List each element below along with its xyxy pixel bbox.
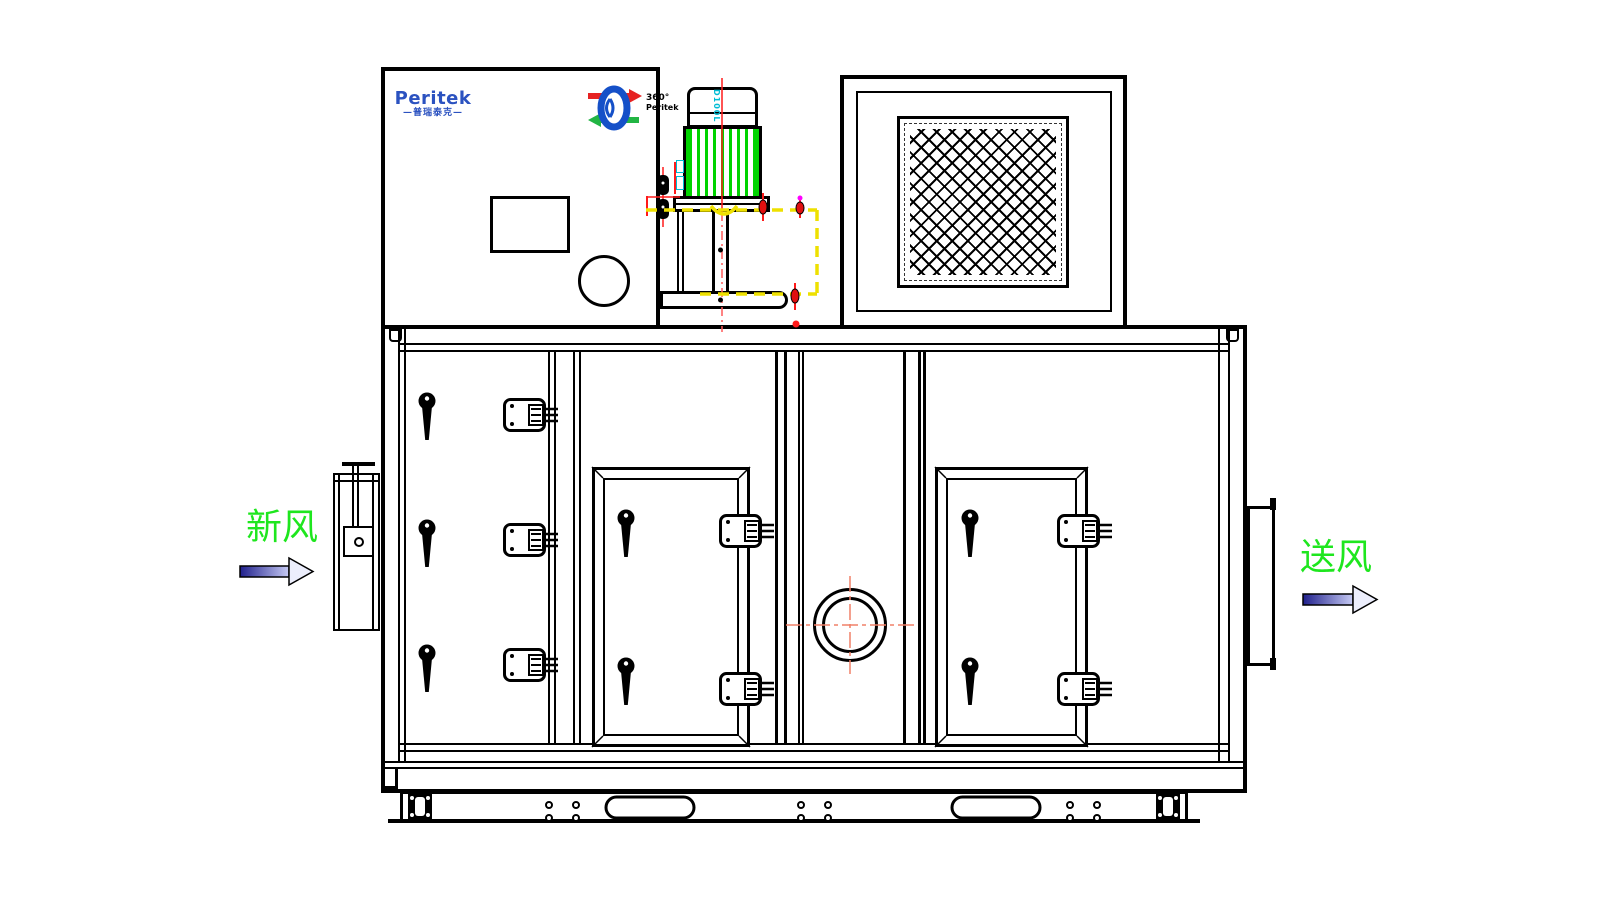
partition-post bbox=[798, 352, 804, 744]
motor-fins bbox=[683, 126, 762, 200]
rotor-badge-text: 360° Peritek bbox=[646, 93, 679, 113]
motor-cap-line bbox=[690, 112, 755, 114]
partition-post bbox=[903, 352, 906, 744]
fresh-air-arrow-icon bbox=[240, 558, 313, 585]
cabinet-floor-line bbox=[381, 761, 1247, 769]
display-window bbox=[490, 196, 570, 253]
top-left-notch bbox=[389, 329, 402, 342]
motor-stand-left-leg bbox=[677, 212, 684, 294]
ground-line bbox=[388, 819, 1200, 823]
middle-door-inner-frame bbox=[603, 478, 739, 736]
motor-frame-label: D100L bbox=[712, 89, 720, 127]
cabinet-right-inner-wall bbox=[1218, 329, 1230, 762]
partition-post bbox=[918, 352, 926, 744]
cabinet-bottom-inner-line bbox=[398, 743, 1230, 752]
bottom-left-notch bbox=[383, 769, 398, 789]
brand-logo-text: Peritek bbox=[390, 90, 476, 108]
damper-actuator-shaft bbox=[354, 537, 364, 547]
supply-air-label: 送风 bbox=[1300, 540, 1372, 576]
cabinet-left-inner-wall bbox=[398, 329, 406, 762]
partition-post bbox=[775, 352, 787, 744]
rotor-badge-line2: Peritek bbox=[646, 103, 679, 112]
base-rail bbox=[400, 791, 1188, 822]
inlet-damper-inner-line bbox=[338, 475, 340, 629]
motor-base-plate-line bbox=[676, 203, 767, 205]
partition-post bbox=[573, 352, 581, 744]
supply-air-arrow-icon bbox=[1303, 586, 1377, 613]
inspection-hole bbox=[578, 255, 630, 307]
motor-terminal-box bbox=[676, 176, 684, 190]
brand-logo-subtext: —普瑞泰克— bbox=[390, 109, 476, 118]
motor-support-channel bbox=[660, 291, 788, 309]
piping-annotation-yellow bbox=[646, 206, 817, 294]
brand-logo: Peritek —普瑞泰克— bbox=[390, 90, 476, 118]
right-door-inner-frame bbox=[946, 478, 1077, 736]
sight-glass-inner-ring bbox=[822, 597, 878, 653]
outlet-duct-flange-top bbox=[1270, 498, 1276, 510]
damper-rod bbox=[352, 466, 359, 528]
fresh-air-label: 新风 bbox=[246, 510, 318, 546]
cabinet-top-inner-line bbox=[398, 343, 1230, 352]
top-right-notch bbox=[1226, 329, 1239, 342]
motor-cap bbox=[687, 87, 758, 128]
motor-terminal-box bbox=[676, 160, 684, 173]
outlet-duct bbox=[1247, 506, 1275, 666]
partition-post bbox=[548, 352, 556, 744]
rotor-badge-line1: 360° bbox=[646, 93, 679, 103]
outlet-duct-flange-bottom bbox=[1270, 658, 1276, 670]
cabinet-body bbox=[381, 325, 1247, 793]
drawing-canvas: Peritek —普瑞泰克— 360° Peritek D100L 新风 送风 bbox=[0, 0, 1613, 897]
filter-mesh bbox=[910, 129, 1056, 275]
